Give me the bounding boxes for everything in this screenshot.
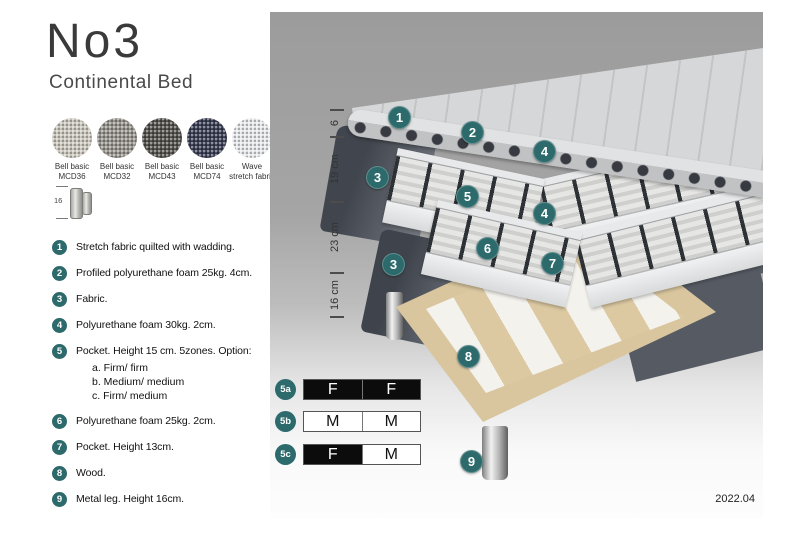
- dimension-label-leg: 16 cm: [329, 275, 343, 315]
- firmness-cells: F M: [303, 444, 421, 465]
- callout-4-lower: 4: [533, 202, 556, 225]
- legend-number-badge: 6: [52, 414, 67, 429]
- dimension-label-base: 23 cm: [329, 217, 343, 257]
- page-subtitle: Continental Bed: [49, 72, 193, 94]
- swatch-label: Bell basicMCD32: [100, 162, 134, 181]
- metal-leg-front: [482, 426, 508, 480]
- leg-height-value: 16: [54, 196, 62, 205]
- legend-number-badge: 5: [52, 344, 67, 359]
- firmness-row-5b: 5b M M: [275, 411, 421, 432]
- fabric-swatch-circle: [142, 118, 182, 158]
- firmness-cells: F F: [303, 379, 421, 400]
- firmness-cell: F: [362, 380, 421, 399]
- legend-item-5: 5 Pocket. Height 15 cm. 5zones. Option:: [52, 344, 268, 359]
- legend-item-9: 9 Metal leg. Height 16cm.: [52, 492, 268, 507]
- firmness-row-5c: 5c F M: [275, 444, 421, 465]
- legend-number-badge: 2: [52, 266, 67, 281]
- callout-5: 5: [456, 185, 479, 208]
- legend-number-badge: 3: [52, 292, 67, 307]
- leg-cylinder-icon: [82, 192, 92, 215]
- callout-6: 6: [476, 237, 499, 260]
- legend-number-badge: 8: [52, 466, 67, 481]
- fabric-swatch-circle: [187, 118, 227, 158]
- legend-item-5-options: a. Firm/ firm b. Medium/ medium c. Firm/…: [92, 361, 268, 403]
- callout-9: 9: [460, 450, 483, 473]
- fabric-swatches: Bell basicMCD36 Bell basicMCD32 Bell bas…: [52, 118, 272, 181]
- fabric-swatch-circle: [52, 118, 92, 158]
- callout-4-upper: 4: [533, 140, 556, 163]
- firmness-cell: M: [304, 412, 362, 431]
- dimension-tick: [330, 316, 344, 318]
- fabric-swatch-circle: [97, 118, 137, 158]
- page-title: No3: [46, 14, 143, 69]
- dimension-tick: [56, 218, 68, 219]
- product-spec-sheet: No3 Continental Bed Bell basicMCD36 Bell…: [0, 0, 800, 533]
- bed-illustration: [270, 12, 763, 518]
- swatch-mcd74: Bell basicMCD74: [187, 118, 227, 181]
- swatch-label: Bell basicMCD36: [55, 162, 89, 181]
- firmness-cell: F: [304, 380, 362, 399]
- info-column: No3 Continental Bed Bell basicMCD36 Bell…: [0, 0, 270, 533]
- swatch-mcd32: Bell basicMCD32: [97, 118, 137, 181]
- firmness-badge: 5c: [275, 444, 296, 465]
- callout-3-upper: 3: [366, 166, 389, 189]
- legend-item-3: 3 Fabric.: [52, 292, 268, 307]
- diagram-panel: 1 2 4 3 5 4 6 7 3 8 9 6 19 cm 23 cm 16 c…: [270, 12, 763, 518]
- legend-item-7: 7 Pocket. Height 13cm.: [52, 440, 268, 455]
- swatch-mcd43: Bell basicMCD43: [142, 118, 182, 181]
- dimension-tick: [330, 201, 344, 203]
- legend-item-4: 4 Polyurethane foam 30kg. 2cm.: [52, 318, 268, 333]
- firmness-badge: 5b: [275, 411, 296, 432]
- legend-item-1: 1 Stretch fabric quilted with wadding.: [52, 240, 268, 255]
- dimension-label-topper: 6: [329, 103, 343, 143]
- dimension-label-middle: 19 cm: [329, 149, 343, 189]
- legend-number-badge: 4: [52, 318, 67, 333]
- parts-legend: 1 Stretch fabric quilted with wadding. 2…: [52, 240, 268, 518]
- callout-3-lower: 3: [382, 253, 405, 276]
- callout-8: 8: [457, 345, 480, 368]
- dimension-tick: [56, 186, 68, 187]
- legend-item-2: 2 Profiled polyurethane foam 25kg. 4cm.: [52, 266, 268, 281]
- firmness-cell: F: [304, 445, 362, 464]
- swatch-label: Bell basicMCD74: [190, 162, 224, 181]
- legend-number-badge: 1: [52, 240, 67, 255]
- swatch-label: Bell basicMCD43: [145, 162, 179, 181]
- fabric-swatch-circle: [232, 118, 272, 158]
- callout-7: 7: [541, 252, 564, 275]
- dimension-tick: [330, 272, 344, 274]
- firmness-row-5a: 5a F F: [275, 379, 421, 400]
- firmness-badge: 5a: [275, 379, 296, 400]
- swatch-label: Wavestretch fabric: [229, 162, 275, 181]
- legend-item-8: 8 Wood.: [52, 466, 268, 481]
- metal-leg-left: [386, 292, 403, 340]
- callout-2: 2: [461, 121, 484, 144]
- leg-height-figure: 16: [54, 183, 102, 225]
- firmness-cells: M M: [303, 411, 421, 432]
- legend-number-badge: 9: [52, 492, 67, 507]
- firmness-cell: M: [362, 412, 421, 431]
- callout-1: 1: [388, 106, 411, 129]
- firmness-cell: M: [362, 445, 421, 464]
- swatch-mcd36: Bell basicMCD36: [52, 118, 92, 181]
- legend-number-badge: 7: [52, 440, 67, 455]
- revision-date: 2022.04: [715, 493, 755, 505]
- legend-item-6: 6 Polyurethane foam 25kg. 2cm.: [52, 414, 268, 429]
- swatch-wave: Wavestretch fabric: [232, 118, 272, 181]
